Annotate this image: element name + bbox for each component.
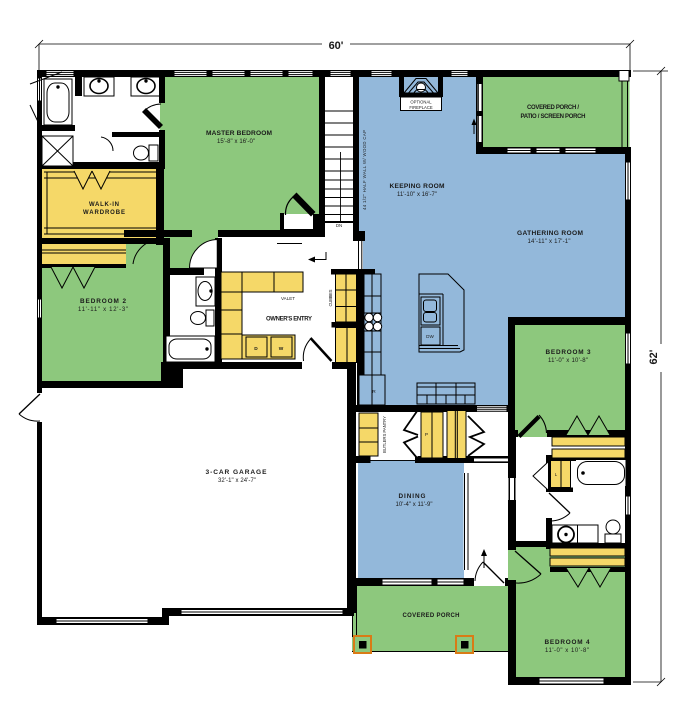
svg-text:DN: DN — [336, 223, 342, 228]
svg-text:FIREPLACE: FIREPLACE — [409, 105, 432, 110]
svg-text:GATHERING ROOM: GATHERING ROOM — [517, 230, 584, 237]
svg-text:PATIO / SCREEN PORCH: PATIO / SCREEN PORCH — [521, 114, 586, 120]
svg-text:WARDROBE: WARDROBE — [83, 210, 125, 216]
svg-text:60': 60' — [329, 40, 344, 52]
svg-text:CUBBIES: CUBBIES — [328, 289, 333, 306]
svg-text:BEDROOM 3: BEDROOM 3 — [546, 349, 591, 356]
svg-text:COVERED PORCH /: COVERED PORCH / — [527, 105, 579, 111]
svg-text:WALK-IN: WALK-IN — [89, 202, 119, 208]
svg-text:11'-10" x 16'-7": 11'-10" x 16'-7" — [397, 192, 437, 198]
svg-text:BEDROOM 4: BEDROOM 4 — [545, 639, 590, 646]
svg-text:R: R — [372, 389, 376, 395]
svg-text:W: W — [279, 346, 284, 352]
svg-text:D: D — [254, 346, 258, 352]
svg-text:62': 62' — [648, 349, 660, 364]
svg-text:COVERED PORCH: COVERED PORCH — [403, 613, 460, 619]
svg-text:MASTER BEDROOM: MASTER BEDROOM — [206, 130, 273, 137]
svg-text:DINING: DINING — [399, 493, 426, 500]
svg-text:P: P — [425, 432, 428, 438]
svg-text:15'-8" x 16'-0": 15'-8" x 16'-0" — [217, 139, 255, 145]
svg-text:32'-1" x 24'-7": 32'-1" x 24'-7" — [218, 478, 256, 484]
svg-text:11'-0" x 10'-8": 11'-0" x 10'-8" — [548, 358, 588, 364]
svg-text:11'-11" x 12'-3": 11'-11" x 12'-3" — [78, 307, 128, 313]
svg-text:OPTIONAL: OPTIONAL — [410, 100, 432, 105]
svg-text:VALET: VALET — [281, 296, 295, 301]
svg-text:44 1/2" HALF WALL W/ WOOD CAP: 44 1/2" HALF WALL W/ WOOD CAP — [362, 130, 367, 210]
svg-text:BEDROOM 2: BEDROOM 2 — [80, 298, 126, 305]
svg-text:OWNER'S ENTRY: OWNER'S ENTRY — [266, 317, 312, 323]
svg-text:11'-0" x 10'-8": 11'-0" x 10'-8" — [545, 648, 589, 654]
svg-text:DW: DW — [426, 334, 434, 339]
svg-text:KEEPING ROOM: KEEPING ROOM — [390, 183, 446, 190]
svg-text:3-CAR GARAGE: 3-CAR GARAGE — [206, 469, 268, 476]
svg-text:14'-11" x 17'-1": 14'-11" x 17'-1" — [528, 239, 571, 245]
svg-text:10'-4" x 11'-9": 10'-4" x 11'-9" — [396, 502, 433, 508]
svg-text:BUTLERS PANTRY: BUTLERS PANTRY — [382, 416, 387, 453]
